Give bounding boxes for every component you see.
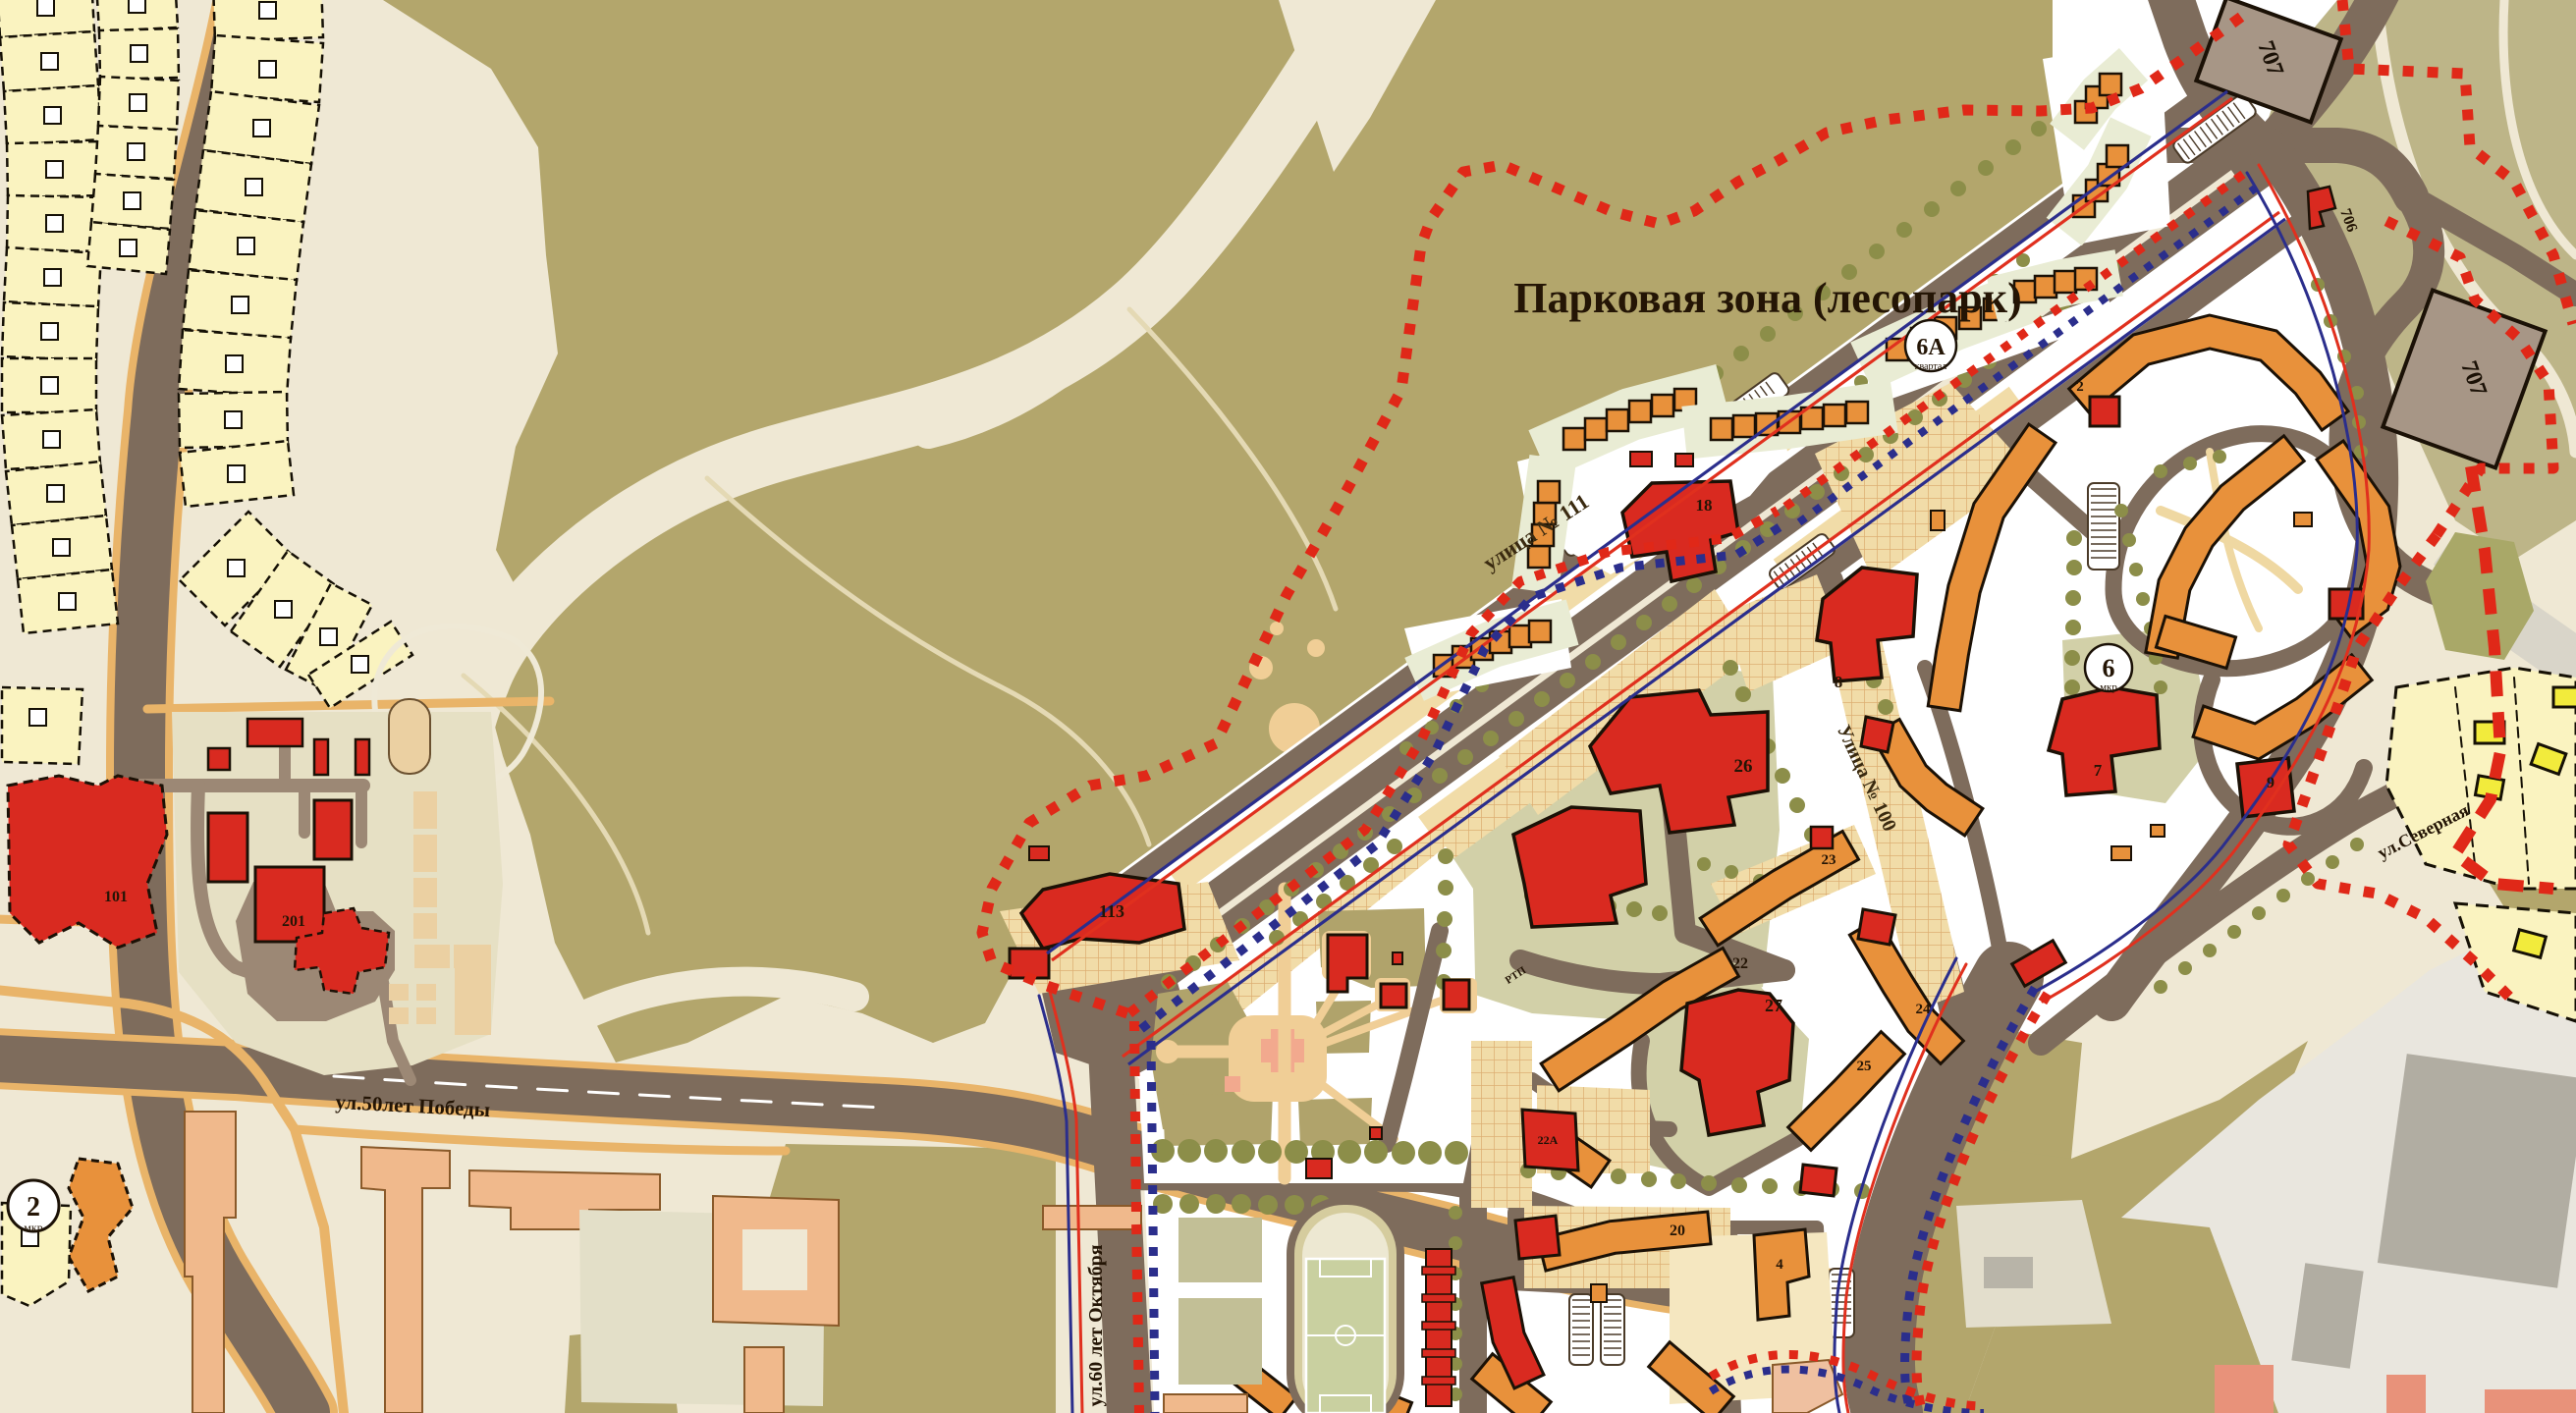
svg-text:20: 20 — [1670, 1223, 1685, 1239]
svg-text:9: 9 — [2267, 775, 2275, 791]
svg-text:7: 7 — [2094, 761, 2103, 780]
svg-text:мкр: мкр — [24, 1221, 42, 1234]
svg-text:ул.60 лет Октября: ул.60 лет Октября — [1085, 1244, 1107, 1406]
svg-text:6А: 6А — [1916, 335, 1946, 360]
svg-text:25: 25 — [1857, 1059, 1872, 1074]
svg-text:6: 6 — [2103, 654, 2115, 682]
svg-text:8: 8 — [1835, 673, 1843, 691]
svg-text:23: 23 — [1822, 852, 1836, 868]
svg-text:18: 18 — [1696, 496, 1713, 515]
svg-text:2: 2 — [27, 1192, 40, 1223]
svg-text:101: 101 — [104, 889, 128, 905]
svg-text:22А: 22А — [1538, 1133, 1559, 1147]
svg-text:27: 27 — [1765, 996, 1782, 1015]
svg-text:26: 26 — [1734, 756, 1753, 777]
svg-text:2: 2 — [2076, 379, 2084, 395]
svg-text:4: 4 — [1776, 1257, 1783, 1273]
svg-text:24: 24 — [1916, 1002, 1932, 1017]
svg-text:Парковая зона (лесопарк): Парковая зона (лесопарк) — [1513, 274, 2021, 322]
svg-text:201: 201 — [282, 913, 305, 930]
svg-text:квартал: квартал — [1915, 361, 1947, 372]
svg-text:22: 22 — [1732, 955, 1748, 972]
svg-text:113: 113 — [1099, 901, 1124, 921]
svg-text:мкр: мкр — [2100, 681, 2117, 693]
